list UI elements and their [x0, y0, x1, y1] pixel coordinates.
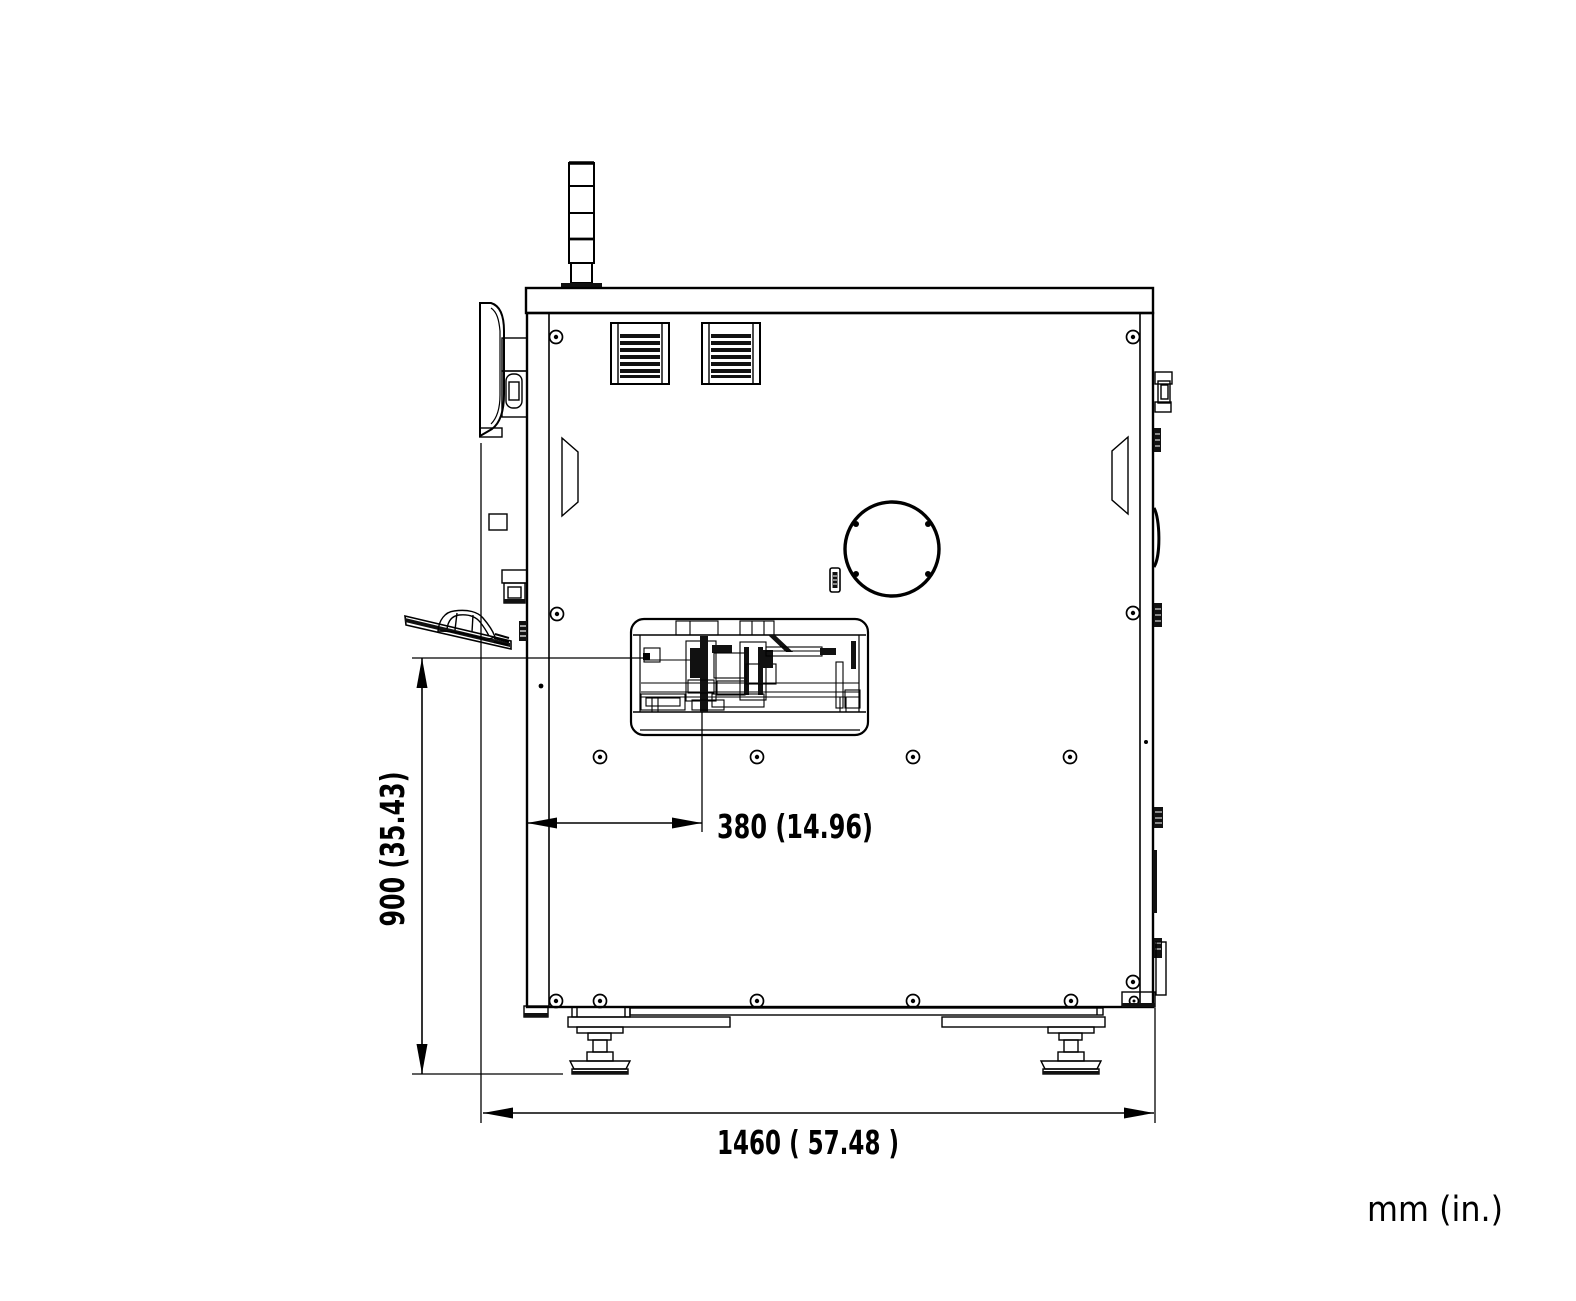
arrowhead-right — [672, 818, 702, 829]
drawing-canvas: 900 (35.43) 380 (14.96) 1460 ( 57.48 ) m… — [0, 0, 1576, 1301]
screw — [1127, 976, 1140, 989]
io-connector — [830, 568, 840, 592]
side-bulge — [1154, 508, 1159, 567]
base-frame — [524, 992, 1155, 1074]
screw — [594, 751, 607, 764]
base-bracket-left — [568, 1017, 730, 1027]
vent-left — [611, 323, 669, 384]
keyboard-tray — [405, 610, 527, 649]
screw — [751, 995, 764, 1008]
base-bracket-right — [942, 1017, 1105, 1027]
connector-strip — [1154, 603, 1162, 627]
cabinet-body — [527, 313, 1153, 1007]
monitor-mount — [502, 338, 527, 417]
right-side-fittings — [1153, 372, 1172, 995]
arrowhead-right — [1124, 1108, 1154, 1119]
top-cover — [526, 288, 1153, 313]
right-latch — [1155, 372, 1172, 412]
screw — [1064, 751, 1077, 764]
connector-strip — [1154, 807, 1163, 828]
monitor-panel — [480, 303, 504, 437]
screw — [550, 995, 563, 1008]
dimension-work-height — [412, 653, 650, 1074]
screw — [1065, 995, 1078, 1008]
screw — [907, 751, 920, 764]
connector-strip — [1154, 428, 1161, 452]
connector-strip — [1154, 938, 1162, 958]
screw — [907, 995, 920, 1008]
signal-tower-light — [561, 163, 602, 289]
dim-label-height: 900 (35.43) — [373, 772, 412, 927]
vent-right — [702, 323, 760, 384]
side-clamp — [502, 570, 527, 603]
arrowhead-up — [417, 658, 428, 688]
fan-opening — [845, 502, 939, 596]
tray-connector — [519, 621, 527, 641]
screw — [594, 995, 607, 1008]
left-side-fittings — [489, 514, 527, 603]
dim-label-offset: 380 (14.96) — [717, 807, 873, 846]
screw — [551, 608, 564, 621]
leveling-foot-left — [570, 1027, 630, 1074]
dimension-overall-width — [481, 443, 1155, 1123]
arrowhead-down — [417, 1044, 428, 1074]
right-handle-recess — [1112, 437, 1128, 514]
screw — [1127, 607, 1140, 620]
leveling-foot-right — [1041, 1027, 1101, 1074]
units-note: mm (in.) — [1367, 1190, 1503, 1230]
arrowhead-left — [527, 818, 557, 829]
side-rail-strip — [1153, 850, 1157, 913]
exhaust-vents — [611, 323, 760, 384]
mechanism-window — [631, 619, 868, 735]
screw — [1127, 331, 1140, 344]
left-handle-recess — [562, 438, 578, 516]
screw — [550, 331, 563, 344]
arrowhead-left — [483, 1108, 513, 1119]
pin-hole — [539, 684, 544, 689]
side-tab — [489, 514, 507, 530]
screw — [751, 751, 764, 764]
dim-label-width: 1460 ( 57.48 ) — [717, 1123, 899, 1162]
pin-hole — [1144, 740, 1148, 744]
